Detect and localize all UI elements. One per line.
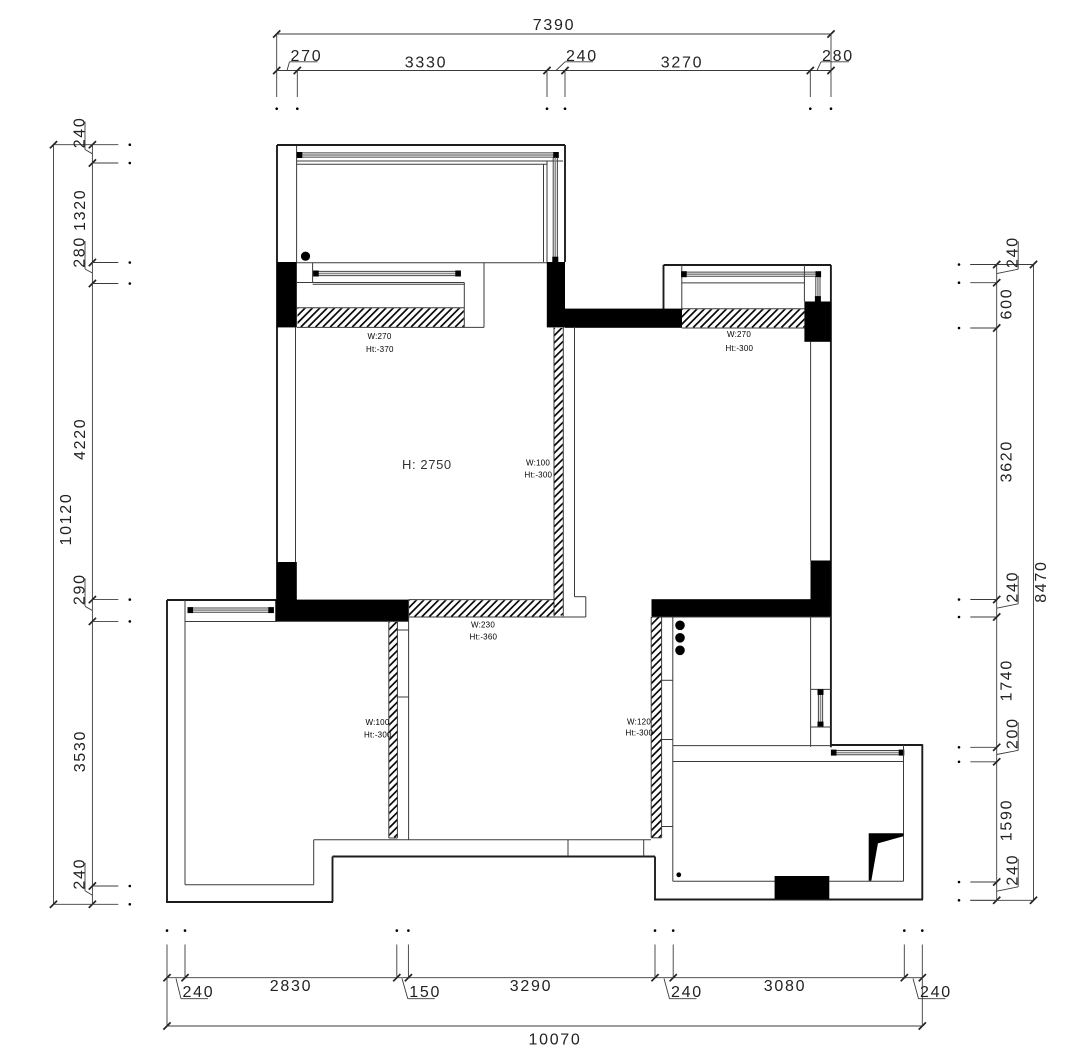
svg-text:200: 200 xyxy=(1005,717,1022,749)
svg-text:3270: 3270 xyxy=(661,55,703,72)
svg-text:600: 600 xyxy=(999,288,1016,320)
svg-text:W:120: W:120 xyxy=(627,718,651,727)
svg-text:H: 2750: H: 2750 xyxy=(402,457,452,472)
svg-text:10070: 10070 xyxy=(529,1032,582,1049)
svg-text:7390: 7390 xyxy=(533,17,575,34)
svg-text:Ht:-300: Ht:-300 xyxy=(726,344,754,353)
svg-text:280: 280 xyxy=(71,236,88,268)
svg-text:240: 240 xyxy=(1005,236,1022,268)
svg-text:3330: 3330 xyxy=(405,55,447,72)
svg-text:240: 240 xyxy=(671,984,703,1001)
svg-text:W:100: W:100 xyxy=(366,718,390,727)
svg-text:1740: 1740 xyxy=(999,659,1016,701)
svg-text:3290: 3290 xyxy=(510,978,552,995)
svg-text:240: 240 xyxy=(1005,571,1022,603)
svg-text:240: 240 xyxy=(566,48,598,65)
svg-text:W:100: W:100 xyxy=(526,459,550,468)
svg-text:Ht:-300: Ht:-300 xyxy=(525,471,553,480)
svg-text:150: 150 xyxy=(409,984,441,1001)
svg-text:Ht:-300: Ht:-300 xyxy=(626,729,654,738)
svg-text:280: 280 xyxy=(822,48,854,65)
svg-text:W:230: W:230 xyxy=(471,621,495,630)
svg-text:290: 290 xyxy=(71,573,88,605)
svg-text:240: 240 xyxy=(71,858,88,890)
svg-text:3080: 3080 xyxy=(764,978,806,995)
svg-text:240: 240 xyxy=(183,984,215,1001)
svg-text:240: 240 xyxy=(71,117,88,149)
svg-text:W:270: W:270 xyxy=(727,330,751,339)
svg-text:240: 240 xyxy=(1005,854,1022,886)
svg-text:3620: 3620 xyxy=(999,440,1016,482)
svg-text:4220: 4220 xyxy=(72,418,89,460)
svg-text:270: 270 xyxy=(291,48,323,65)
svg-text:8470: 8470 xyxy=(1033,560,1050,602)
svg-text:Ht:-360: Ht:-360 xyxy=(470,633,498,642)
svg-text:Ht:-300: Ht:-300 xyxy=(364,731,392,740)
svg-text:W:270: W:270 xyxy=(368,332,392,341)
svg-text:Ht:-370: Ht:-370 xyxy=(366,345,394,354)
svg-text:240: 240 xyxy=(920,984,952,1001)
svg-text:1320: 1320 xyxy=(72,189,89,231)
svg-text:3530: 3530 xyxy=(72,730,89,772)
svg-text:1590: 1590 xyxy=(999,799,1016,841)
svg-text:2830: 2830 xyxy=(270,978,312,995)
svg-text:10120: 10120 xyxy=(58,493,75,546)
